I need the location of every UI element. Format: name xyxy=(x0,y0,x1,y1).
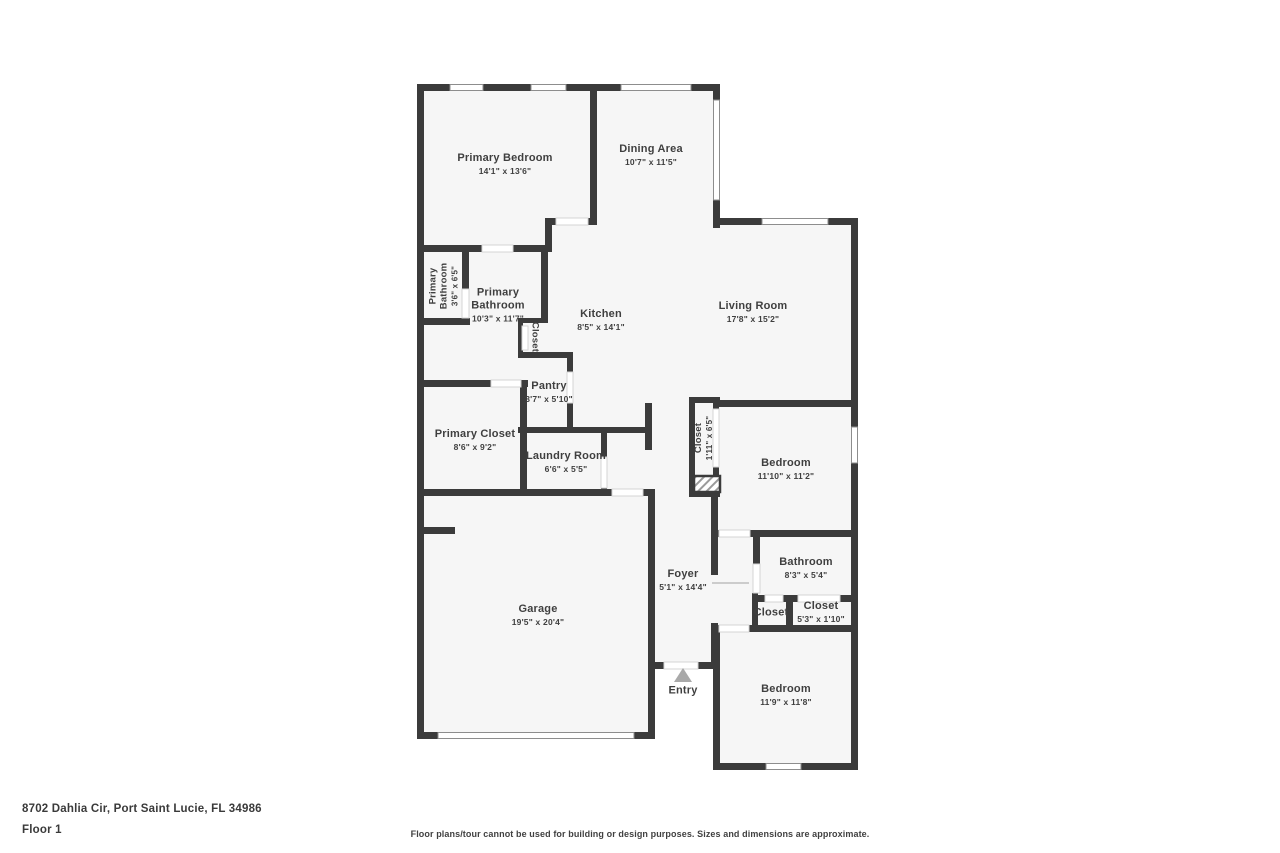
property-address: 8702 Dahlia Cir, Port Saint Lucie, FL 34… xyxy=(22,803,262,815)
disclaimer-text: Floor plans/tour cannot be used for buil… xyxy=(0,829,1280,839)
entry-arrow-icon xyxy=(674,668,692,682)
floor-plan-page: Primary Bedroom14'1" x 13'6"Dining Area1… xyxy=(0,0,1280,853)
floor-plan-drawing xyxy=(0,0,1280,853)
garage-door xyxy=(438,733,634,739)
closet-door-swing-line xyxy=(712,582,749,584)
water-heater-hatch xyxy=(694,476,720,492)
